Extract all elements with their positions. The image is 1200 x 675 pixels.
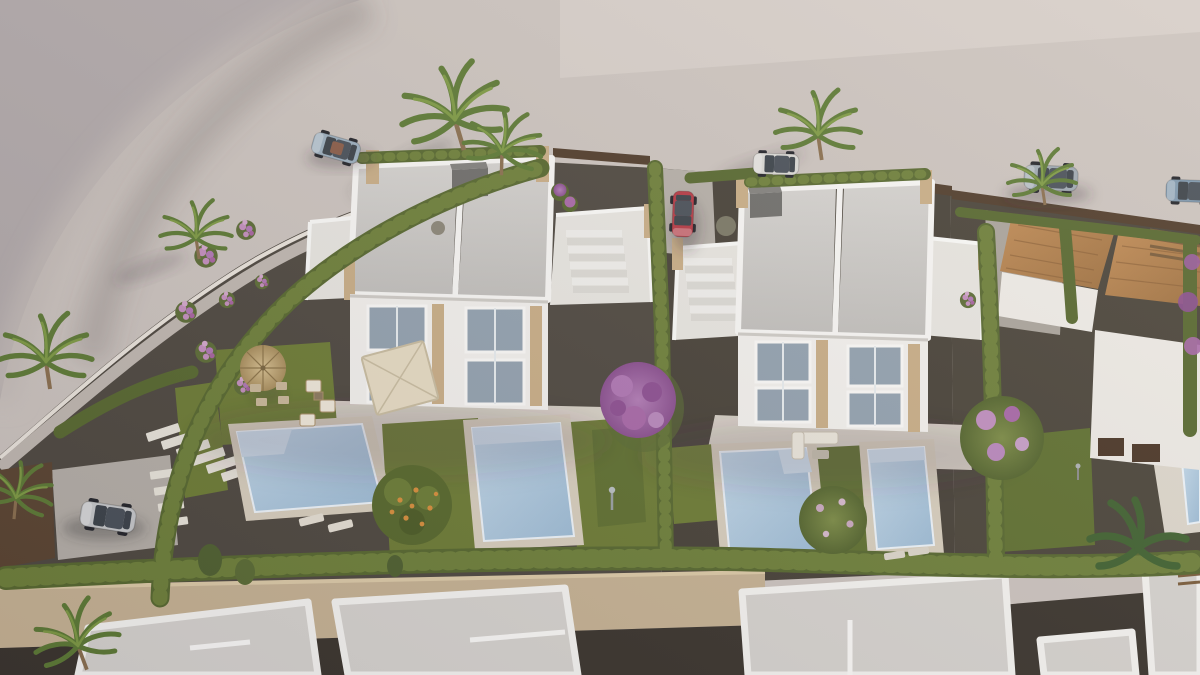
armchair <box>300 414 315 426</box>
chair <box>256 398 267 406</box>
armchair <box>306 380 321 392</box>
shrub <box>387 555 403 577</box>
ball-bush <box>716 216 736 236</box>
ball-bush <box>431 221 445 235</box>
chimney <box>750 192 782 218</box>
villa-shadow <box>190 404 610 476</box>
shrub <box>198 544 222 576</box>
chair <box>278 396 289 404</box>
stone-trim <box>530 306 542 406</box>
car-blue-right-edge <box>1166 176 1200 206</box>
aerial-render <box>0 0 1200 675</box>
stone-trim <box>908 344 920 432</box>
dark-window <box>1098 438 1124 456</box>
blossom-tree-pool3 <box>799 486 867 554</box>
bougainvillea-right <box>960 396 1044 480</box>
chair <box>276 382 287 390</box>
stone-trim <box>816 340 828 428</box>
shrub <box>235 559 255 585</box>
building-roof-5 <box>1040 632 1136 675</box>
building-roof-3 <box>742 575 1012 675</box>
side-table <box>314 392 323 400</box>
roof <box>738 182 932 338</box>
dark-window <box>1132 444 1160 462</box>
citrus-tree <box>372 465 452 545</box>
hedge-far-right-short <box>1065 228 1072 318</box>
chair <box>250 384 261 392</box>
armchair <box>320 400 335 412</box>
car-estate-white <box>753 150 800 178</box>
roof-panel-right <box>838 182 932 338</box>
car-red-hatchback <box>669 191 697 238</box>
coffee-table <box>812 450 829 459</box>
